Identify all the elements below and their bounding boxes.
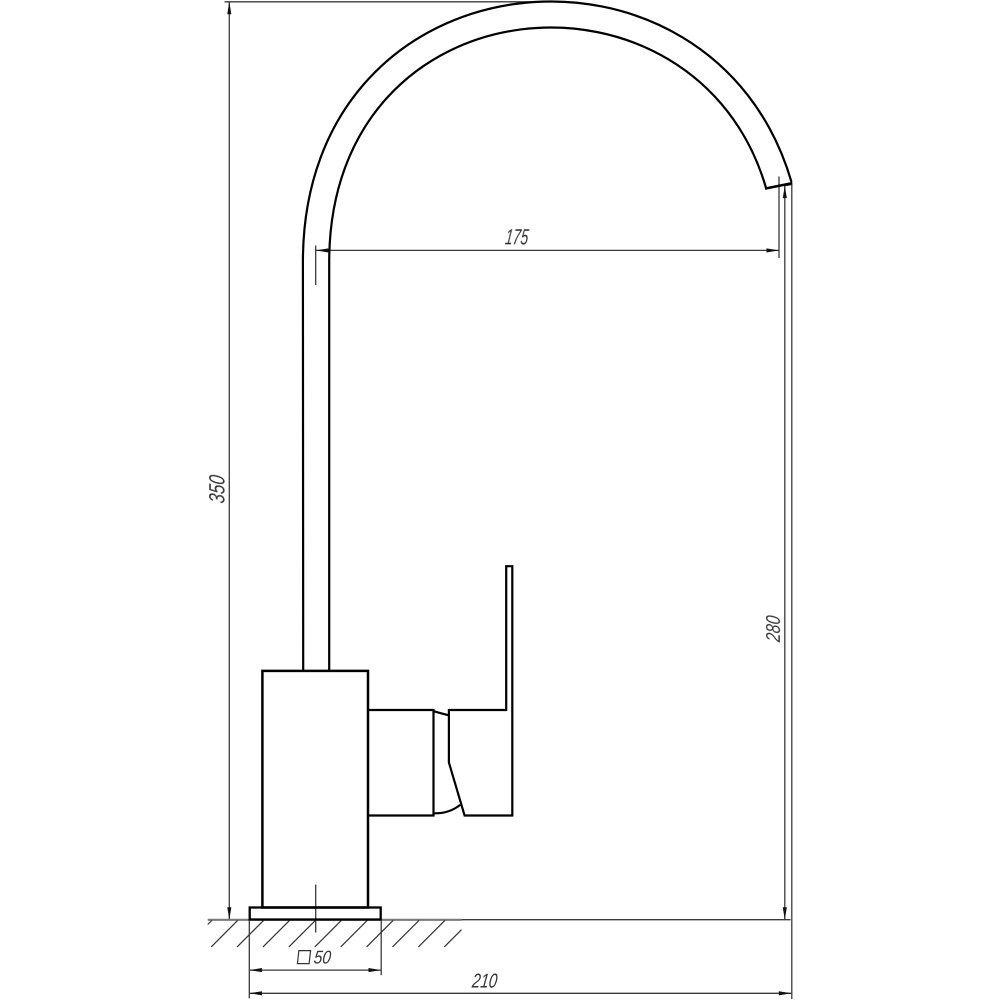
svg-text:210: 210 [470,971,498,993]
svg-text:50: 50 [313,946,333,967]
svg-text:350: 350 [205,473,230,505]
svg-text:280: 280 [763,614,785,643]
svg-text:175: 175 [504,225,531,250]
